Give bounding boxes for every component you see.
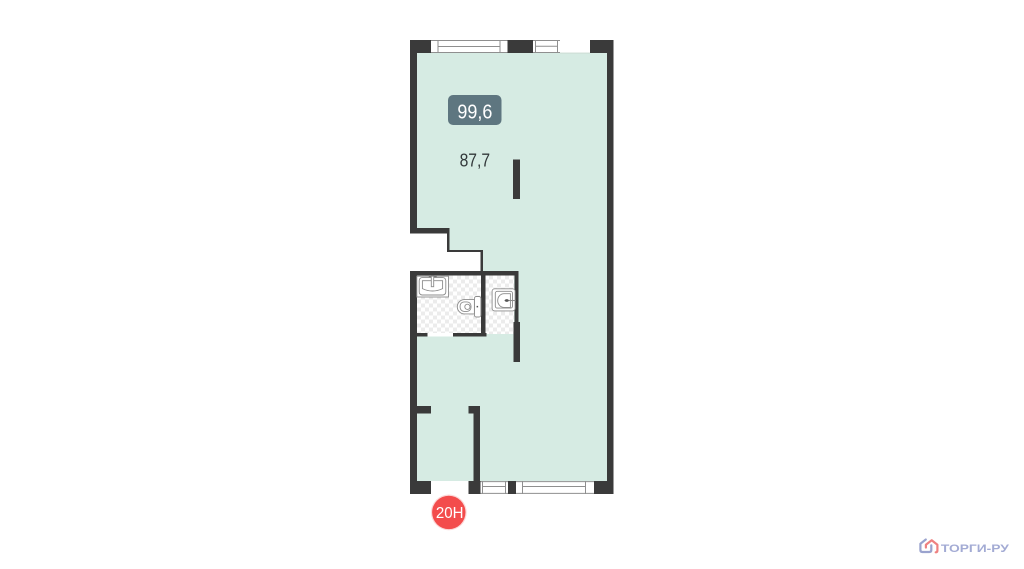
svg-text:20Н: 20Н <box>436 505 464 522</box>
svg-text:99,6: 99,6 <box>457 101 492 124</box>
svg-text:87,7: 87,7 <box>460 149 491 170</box>
svg-text:ТОРГИ-РУ: ТОРГИ-РУ <box>941 543 1009 555</box>
